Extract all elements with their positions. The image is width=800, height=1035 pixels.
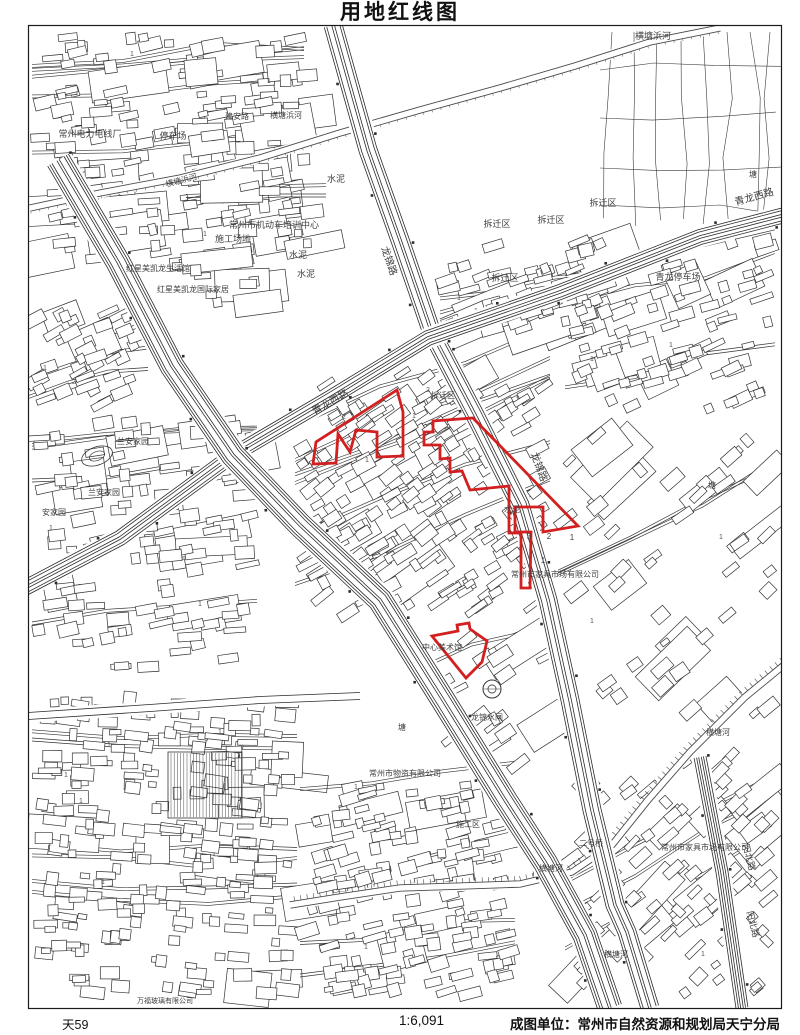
map-label: 水泥 [289, 249, 307, 260]
map-footer: 天59 1:6,091 成图单位：常州市自然资源和规划局天宁分局 [0, 1011, 800, 1033]
map-content: 1112111112221111111111112111111121横塘浜河横塘… [0, 0, 800, 1035]
map-label: 二号桥 [579, 838, 603, 848]
map-label: 拆迁区 [431, 390, 455, 400]
svg-text:1: 1 [203, 231, 207, 238]
svg-text:1: 1 [43, 365, 47, 372]
svg-text:1: 1 [365, 457, 369, 464]
map-label: 横塘河 [539, 863, 563, 873]
map-label: 拆迁区 [537, 214, 564, 225]
map-label: 横塘河 [706, 727, 730, 737]
svg-text:1: 1 [669, 342, 673, 349]
map-label: 安家园 [42, 507, 66, 517]
map-label: 拆迁区 [589, 197, 616, 208]
map-label: 3 [527, 532, 532, 541]
map-label: 常州电力电线厂 [58, 128, 121, 139]
map-label: 1 [541, 556, 546, 565]
map-label: 塘 [398, 722, 406, 732]
map-label: 万福玻璃有限公司 [137, 996, 193, 1005]
map-label: 兰安家园 [117, 436, 149, 446]
map-canvas: 1112111112221111111111112111111121横塘浜河横塘… [0, 0, 800, 1035]
map-label: 塘 [708, 480, 716, 490]
map-label: 横塘河 [604, 949, 628, 959]
svg-text:1: 1 [457, 295, 461, 302]
map-label: 2 [547, 532, 552, 541]
map-label: 1 [570, 533, 575, 542]
svg-text:1: 1 [198, 601, 202, 608]
map-label: 红星美凯龙国际家居 [157, 284, 229, 294]
map-label: 拆迁区 [491, 272, 518, 283]
map-label: 青龙停车场 [655, 271, 700, 282]
svg-text:1: 1 [218, 729, 222, 736]
map-label: 兰安家园 [88, 487, 120, 497]
map-label: 停车场 [159, 130, 186, 141]
svg-text:2: 2 [342, 414, 346, 421]
map-label: 常州市机动车培训中心 [229, 219, 319, 230]
map-scale: 1:6,091 [399, 1013, 444, 1028]
map-label: 施工场地 [215, 233, 251, 244]
agency-label: 成图单位：常州市自然资源和规划局天宁分局 [510, 1013, 780, 1033]
svg-text:1: 1 [64, 772, 68, 779]
map-label: 红星美凯龙生活馆 [126, 263, 190, 273]
map-label: 塘 [749, 169, 757, 179]
svg-text:2: 2 [426, 387, 430, 394]
map-label: 中心美术馆 [422, 642, 462, 652]
map-label: 水泥 [504, 504, 520, 514]
svg-text:1: 1 [364, 944, 368, 951]
map-label: 拆迁区 [483, 218, 510, 229]
map-label: 龙锦水闸 [471, 712, 503, 722]
svg-text:1: 1 [590, 356, 594, 363]
map-label: 横塘浜河 [635, 30, 671, 41]
svg-text:1: 1 [101, 879, 105, 886]
svg-text:1: 1 [130, 51, 134, 58]
map-label: 施工区 [456, 819, 480, 829]
map-label: 常州市家具市场有限公司 [661, 842, 749, 852]
svg-text:1: 1 [79, 798, 83, 805]
svg-text:1: 1 [107, 742, 111, 749]
map-label: 水泥 [297, 268, 315, 279]
map-label: 常州市物资有限公司 [369, 768, 441, 778]
map-label: 水泥 [327, 173, 345, 184]
svg-text:1: 1 [267, 78, 271, 85]
map-label: 横塘浜河 [270, 110, 302, 120]
map-label: 建安路 [225, 111, 249, 121]
svg-text:1: 1 [412, 413, 416, 420]
svg-text:1: 1 [590, 618, 594, 625]
svg-text:1: 1 [719, 534, 723, 541]
svg-text:2: 2 [72, 379, 76, 386]
svg-text:1: 1 [354, 784, 358, 791]
svg-text:1: 1 [49, 525, 53, 532]
map-label: 常州市家具市场有限公司 [511, 569, 599, 579]
sheet-number: 天59 [62, 1014, 88, 1033]
svg-text:1: 1 [701, 951, 705, 958]
